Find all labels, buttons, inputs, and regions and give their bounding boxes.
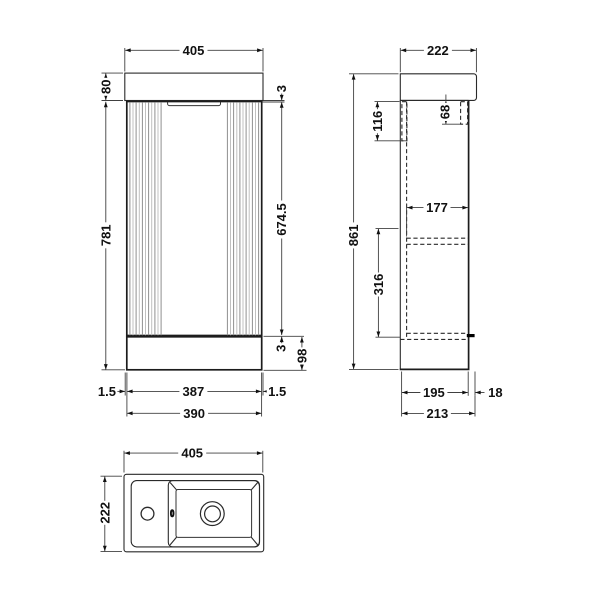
svg-text:1.5: 1.5 [268, 384, 286, 399]
svg-text:387: 387 [183, 384, 205, 399]
svg-text:222: 222 [427, 43, 449, 58]
svg-text:177: 177 [426, 200, 448, 215]
svg-text:405: 405 [183, 43, 205, 58]
svg-text:195: 195 [423, 385, 445, 400]
svg-text:116: 116 [370, 111, 385, 132]
svg-text:222: 222 [97, 502, 112, 524]
svg-text:68: 68 [437, 105, 452, 119]
svg-text:405: 405 [181, 446, 203, 461]
svg-text:3: 3 [273, 345, 288, 352]
svg-text:781: 781 [98, 224, 113, 246]
svg-text:861: 861 [346, 225, 361, 247]
svg-text:80: 80 [98, 80, 113, 94]
svg-text:390: 390 [183, 406, 205, 421]
svg-text:3: 3 [274, 85, 289, 92]
svg-text:674.5: 674.5 [274, 203, 289, 236]
svg-text:1.5: 1.5 [98, 384, 116, 399]
svg-text:98: 98 [294, 349, 309, 363]
svg-text:316: 316 [371, 274, 386, 296]
svg-text:213: 213 [427, 406, 449, 421]
svg-text:18: 18 [488, 385, 502, 400]
